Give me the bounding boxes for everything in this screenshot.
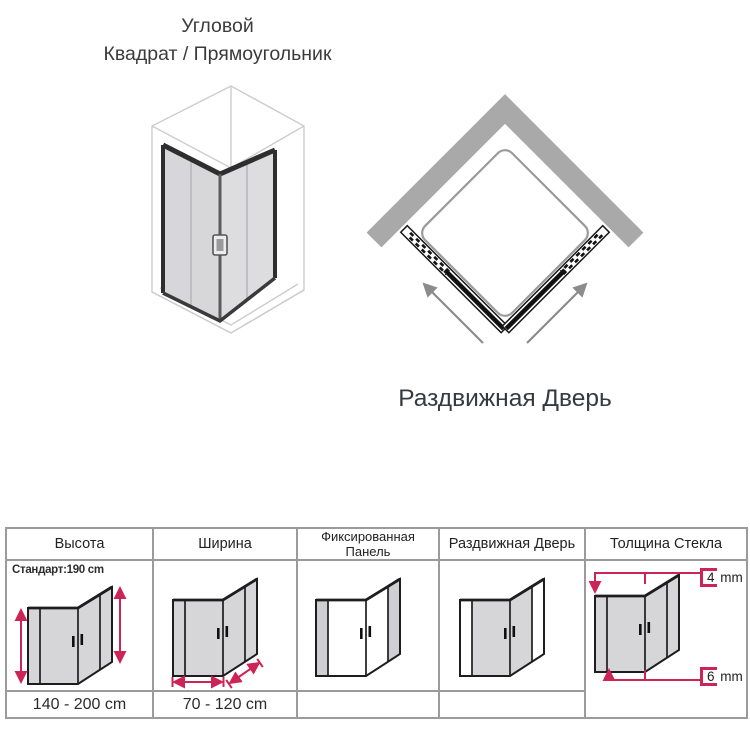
fixed-panel-enclosure-drawing [302,567,434,691]
glass-thickness-drawing-cell: 4 mm 6 mm [585,560,747,718]
page-title: Угловой Квадрат / Прямоугольник [60,13,375,68]
page-title-line2: Квадрат / Прямоугольник [60,41,375,69]
header-row: Высота Ширина Фиксированная Панель Раздв… [6,528,747,560]
height-drawing-cell: Стандарт:190 cm [6,560,153,691]
fixed-panel-range [297,691,439,718]
glass-6mm-bracket-icon: 6 [700,667,717,686]
glass-4mm-bracket-icon: 4 [700,568,717,587]
top-view-diagram [360,80,650,375]
sliding-door-range [439,691,585,718]
glass-4mm-label: 4 mm [700,568,743,587]
sliding-door-enclosure-drawing [446,567,578,691]
width-enclosure-drawing [159,567,291,691]
door-handle-icon [213,235,227,255]
header-sliding-door: Раздвижная Дверь [439,528,585,560]
sliding-door-drawing-cell [439,560,585,691]
width-arrow-front [173,677,224,687]
height-enclosure-drawing [14,575,146,699]
header-height: Высота [6,528,153,560]
header-glass-thickness: Толщина Стекла [585,528,747,560]
glass-6mm-label: 6 mm [700,667,743,686]
diagram-caption: Раздвижная Дверь [362,385,648,413]
drawing-row: Стандарт:190 cm [6,560,747,691]
glass-4mm-dimension-line [595,573,700,592]
spec-table: Высота Ширина Фиксированная Панель Раздв… [5,527,748,719]
width-drawing-cell [153,560,297,691]
header-width: Ширина [153,528,297,560]
page-title-line1: Угловой [60,13,375,41]
header-fixed-panel: Фиксированная Панель [297,528,439,560]
fixed-panel-drawing-cell [297,560,439,691]
product-sheet: Угловой Квадрат / Прямоугольник [0,0,750,750]
corner-shower-isometric-drawing [128,82,333,362]
width-range: 70 - 120 cm [153,691,297,718]
